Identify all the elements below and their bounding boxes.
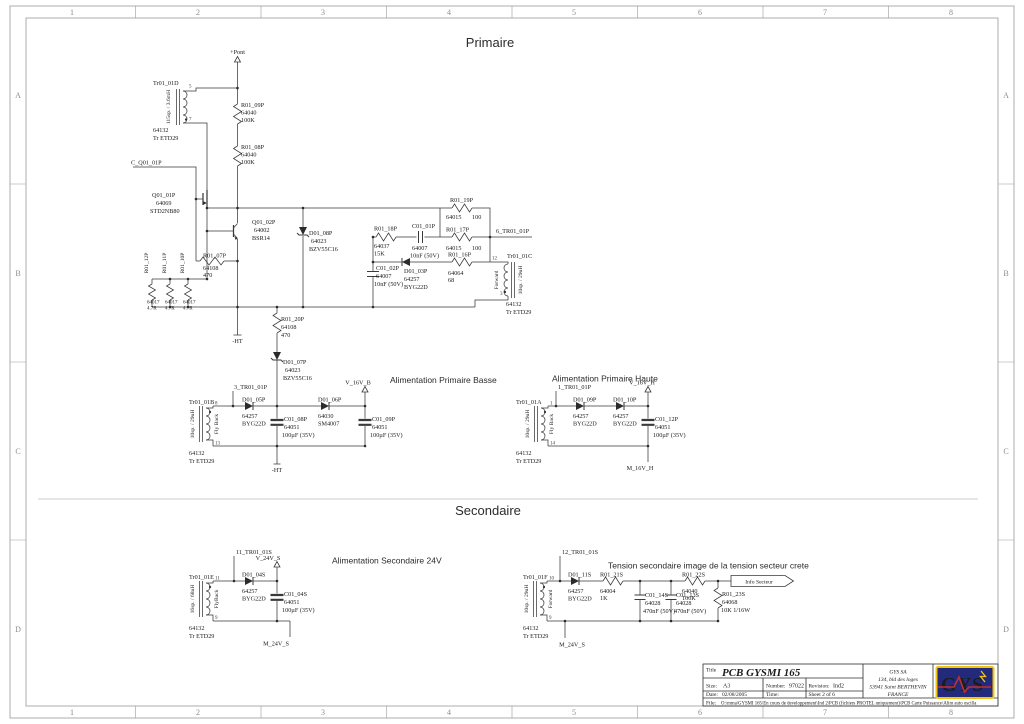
polarity-dot (504, 291, 506, 293)
transformer-tr01-01b: Tr01_01B 8 13 10sp. / 29uH Fly Back 6413… (189, 399, 221, 465)
r01-23s-ref: R01_23S (722, 591, 746, 598)
r01-08p-part: 64040 (241, 152, 256, 159)
r01-12p-val: 4.7R (147, 307, 157, 312)
net-label-ht: -HT (272, 467, 283, 474)
diode-d01-06p: D01_06P 64030 SM4007 (318, 397, 342, 428)
tr01-01c-pin-a: 12 (492, 257, 498, 262)
tr01-01a-ref: Tr01_01A (516, 399, 542, 406)
resistor-r01-23s: R01_23S 64068 10K 1/16W (714, 588, 750, 614)
d01-05p-part: 64257 (242, 413, 257, 420)
diode-d01-10p: D01_10P 64257 BYG22D (613, 397, 637, 428)
r01-19p-part: 64015 (446, 214, 461, 221)
resistor-r01-19p: R01_19P 64015 100 (446, 197, 481, 221)
plates (359, 420, 372, 425)
r01-18p-ref: R01_18P (374, 226, 398, 233)
c01-02p-val: 10nF (50V) (374, 281, 403, 288)
r01-18p-val: 15K (374, 251, 385, 258)
d01-08p-part: 64023 (311, 238, 326, 245)
r01-07p-ref: R01_07P (203, 253, 227, 260)
mosfet-q01-01p: Q01_01P 64069 STD2NB80 (150, 190, 207, 215)
r01-16p-val: 68 (448, 277, 454, 284)
diode-d01-04s: D01_04S 64257 BYG22D (242, 572, 266, 603)
net-label-m24v-s: M_24V_S (263, 641, 289, 648)
zigzag (149, 284, 156, 300)
c01-04s-part: 64051 (284, 599, 299, 606)
tr01-01d-type: Tr ETD29 (153, 135, 178, 142)
tr01-01b-winding: 10sp. / 29uH (190, 410, 196, 439)
r01-20p-part: 64108 (281, 324, 296, 331)
r01-18p-part: 64037 (374, 243, 389, 250)
zone-row-left: B (15, 269, 20, 278)
r01-22s-val: 100K (682, 595, 696, 602)
d01-06p-val: SM4007 (318, 421, 339, 428)
polarity-dot (209, 586, 211, 588)
d01-10p-ref: D01_10P (613, 397, 637, 404)
zone-row-right: C (1003, 447, 1008, 456)
wires (133, 62, 475, 406)
r01-23s-part: 64068 (722, 599, 737, 606)
diode-triangle (402, 258, 410, 266)
d01-06p-ref: D01_06P (318, 397, 342, 404)
net-label-6-tr01-01p: 6_TR01_01P (496, 228, 530, 235)
q01-01p-val: STD2NB80 (150, 208, 180, 215)
alim-primaire-basse: Alimentation Primaire Basse 3_TR01_01P V… (189, 375, 497, 474)
alim-basse-title: Alimentation Primaire Basse (390, 375, 497, 385)
resistor-r01-09p: R01_09P 64040 100K (234, 102, 265, 124)
net-label-pont: +Pont (230, 49, 245, 56)
transformer-tr01-01e: Tr01_01E 11 9 16sp. / 68uH FlyBack 64132… (189, 574, 220, 640)
c01-08p-part: 64051 (284, 424, 299, 431)
tr01-01a-type: Tr ETD29 (516, 458, 541, 465)
capacitor-c01-02p: C01_02P 64007 10nF (50V) (374, 265, 403, 288)
zone-col-top: 2 (196, 8, 200, 17)
number-label: Number: (766, 684, 786, 690)
r01-20p-val: 470 (281, 332, 290, 339)
d01-10p-part: 64257 (613, 413, 628, 420)
tr01-01e-part: 64132 (189, 625, 204, 632)
core (177, 89, 180, 125)
size-value: A3 (723, 684, 730, 690)
number-value: 97022 (789, 684, 804, 690)
resistor-r01-18p: R01_18P 64037 15K (374, 226, 398, 258)
diode-d01-03p: D01_03P 64257 BYG22D (402, 258, 428, 291)
c01-09p-val: 100µF (35V) (370, 432, 403, 439)
zone-row-left: D (15, 625, 21, 634)
v24s-arrow-icon (274, 562, 280, 568)
tr01-01f-mode: Forward (548, 589, 554, 608)
zone-row-right: D (1003, 625, 1009, 634)
core (535, 406, 538, 442)
c01-02p-ref: C01_02P (376, 265, 400, 272)
net-label-12-tr01-01s: 12_TR01_01S (562, 549, 599, 556)
coil (183, 91, 187, 123)
zone-col-top: 6 (698, 8, 702, 17)
tr01-01b-part: 64132 (189, 450, 204, 457)
r01-21s-ref: R01_21S (600, 572, 624, 579)
zone-row-right: A (1003, 91, 1009, 100)
q01-01p-ref: Q01_01P (152, 192, 176, 199)
sheet-value: Sheet 2 of 6 (809, 691, 836, 698)
d01-05p-val: BYG22D (242, 421, 266, 428)
time-label: Time: (766, 692, 779, 698)
c01-14s-val: 470nF (50V) (643, 608, 675, 615)
d01-03p-part: 64257 (404, 276, 419, 283)
d01-04s-part: 64257 (242, 588, 257, 595)
r01-16p-part: 64064 (448, 270, 463, 277)
zone-col-top: 3 (321, 8, 325, 17)
v16b-arrow-icon (362, 387, 368, 393)
d01-11s-part: 64257 (568, 588, 583, 595)
zone-col-top: 8 (949, 8, 953, 17)
r01-22s-ref: R01_22S (682, 572, 706, 579)
c01-01p-plates (419, 231, 423, 243)
net-label-m24v-s: M_24V_S (559, 642, 585, 649)
q01-02p-part: 64002 (254, 227, 269, 234)
tr01-01a-winding: 10sp. / 29uH (525, 410, 531, 439)
zigzag (452, 204, 472, 212)
capacitor-c01-01p: C01_01P 64007 10nF (50V) (410, 223, 439, 260)
tr01-01e-pin-a: 11 (215, 577, 220, 582)
zigzag (452, 233, 472, 241)
c01-08p-ref: C01_08P (284, 416, 308, 423)
c01-12p-val: 100µF (35V) (653, 432, 686, 439)
d01-07p-ref: D01_07P (283, 359, 307, 366)
net-label-v16v-h: V_16V_H (629, 380, 655, 387)
d01-03p-val: BYG22D (404, 284, 428, 291)
tr01-01f-type: Tr ETD29 (523, 633, 548, 640)
net-label-v24v-s: V_24V_S (256, 555, 281, 562)
c01-04s-val: 100µF (35V) (282, 607, 315, 614)
net-label-ht: -HT (232, 338, 243, 345)
r01-23s-val: 10K 1/16W (721, 607, 750, 614)
tr01-01f-pin-a: 10 (549, 577, 555, 582)
net-label-1-tr01-01p: 1_TR01_01P (558, 384, 592, 391)
tr01-01f-winding: 10sp. / 29uH (524, 585, 530, 614)
net-label-info-secteur: Info Secteur (745, 579, 773, 586)
d01-09p-ref: D01_09P (573, 397, 597, 404)
r01-09p-ref: R01_09P (241, 102, 265, 109)
zone-col-top: 1 (70, 8, 74, 17)
file-path: O:\mma\GYSMI 165\En cours de developpeme… (721, 701, 977, 706)
polarity-dot (209, 411, 211, 413)
tr01-01d-pin-a: 5 (189, 85, 192, 90)
zone-ticks (10, 6, 1014, 718)
transformer-tr01-01d: Tr01_01D 5 7 64132 Tr ETD29 115sp. / 3.6… (153, 80, 192, 142)
zone-col-bottom: 8 (949, 708, 953, 717)
d01-07p-val: BZV55C16 (283, 375, 312, 382)
primaire-title: Primaire (466, 35, 514, 50)
zigzag (167, 284, 174, 300)
core (512, 262, 515, 298)
c01-09p-ref: C01_09P (372, 416, 396, 423)
r01-21s-part: 64004 (600, 588, 615, 595)
tr01-01b-type: Tr ETD29 (189, 458, 214, 465)
zone-col-top: 7 (823, 8, 827, 17)
tr01-01c-winding: 10sp. / 29uH (518, 266, 524, 295)
tr01-01d-part: 64132 (153, 127, 168, 134)
core (534, 581, 537, 617)
zigzag (273, 313, 281, 333)
tr01-01c-part: 64132 (506, 301, 521, 308)
tr01-01a-pin-b: 14 (550, 442, 556, 447)
plates (271, 595, 284, 600)
title-label: Title (706, 668, 717, 674)
tr01-01a-mode: Fly Back (549, 414, 555, 435)
company-address-2: 53941 Saint BERTHEVIN (869, 684, 926, 691)
d01-04s-ref: D01_04S (242, 572, 266, 579)
r01-08p-ref: R01_08P (241, 144, 265, 151)
tr01-01d-pin-b: 7 (189, 118, 192, 123)
zone-col-bottom: 5 (572, 708, 576, 717)
junction-dots (169, 87, 375, 309)
c01-14s-part: 64028 (645, 600, 660, 607)
d01-03p-ref: D01_03P (404, 268, 428, 275)
bjt-q01-02p: Q01_02P 64002 BSR14 (234, 219, 276, 242)
file-label: File: (706, 701, 717, 707)
tr01-01c-type: Tr ETD29 (506, 309, 531, 316)
secondaire-title: Secondaire (455, 503, 521, 518)
zone-col-top: 5 (572, 8, 576, 17)
d01-11s-ref: D01_11S (568, 572, 592, 579)
r01-09p-part: 64040 (241, 110, 256, 117)
r01-10p-part: 64017 (183, 301, 196, 306)
document-title: PCB GYSMI 165 (722, 667, 801, 679)
alim-secondaire-24v: Alimentation Secondaire 24V 11_TR01_01S … (189, 549, 442, 648)
outer-border (10, 6, 1014, 718)
r01-09p-val: 100K (241, 117, 255, 124)
company-country: FRANCE (887, 692, 909, 698)
c01-13s-val: 470nF (50V) (674, 608, 706, 615)
tr01-01f-ref: Tr01_01F (523, 574, 548, 581)
d01-05p-ref: D01_05P (242, 397, 266, 404)
pont-arrow-icon (235, 57, 241, 63)
zone-col-bottom: 4 (447, 708, 451, 717)
primary-snubber-stage: R01_18P 64037 15K C01_01P 64007 10nF (50… (367, 197, 532, 316)
tr01-01e-winding: 16sp. / 68uH (190, 585, 196, 614)
resistor-r01-08p: R01_08P 64040 100K (234, 144, 265, 166)
alim-sec24-title: Alimentation Secondaire 24V (332, 556, 442, 566)
r01-19p-val: 100 (472, 214, 481, 221)
zigzag (376, 233, 396, 241)
alim-primaire-haute: Alimentation Primaire Haute 1_TR01_01P V… (516, 374, 686, 473)
c01-01p-ref: C01_01P (412, 223, 436, 230)
tr01-01b-pin-b: 13 (215, 442, 221, 447)
tr01-01b-mode: Fly Back (214, 414, 220, 435)
r01-22s-part: 64040 (682, 588, 697, 595)
d01-09p-part: 64257 (573, 413, 588, 420)
tr01-01e-mode: FlyBack (214, 589, 220, 608)
tr01-01a-part: 64132 (516, 450, 531, 457)
r01-11p-part: 64017 (165, 301, 178, 306)
revision-label: Revision: (809, 684, 831, 690)
d01-10p-val: BYG22D (613, 421, 637, 428)
q01-02p-ref: Q01_02P (252, 219, 276, 226)
zigzag (714, 588, 722, 608)
resistor-r01-21s: R01_21S 64004 1K (600, 572, 624, 603)
tension-sec-title: Tension secondaire image de la tension s… (608, 561, 809, 571)
r01-16p-ref: R01_16P (448, 252, 472, 259)
sheet-frame: 1 2 3 4 5 6 7 8 1 2 3 4 5 6 7 8 A B C D … (10, 6, 1014, 718)
c01-09p-part: 64051 (372, 424, 387, 431)
zone-col-bottom: 1 (70, 708, 74, 717)
tr01-01f-pin-b: 9 (549, 616, 552, 621)
d01-08p-val: BZV55C16 (309, 246, 338, 253)
resistor-r01-16p: R01_16P 64064 68 (448, 252, 472, 285)
r01-12p-part: 64017 (147, 301, 160, 306)
d01-08p-ref: D01_08P (309, 230, 333, 237)
transformer-tr01-01c: 12 Tr01_01C 3 Forward 10sp. / 29uH 64132… (492, 253, 532, 316)
r01-17p-ref: R01_17P (446, 227, 470, 234)
tr01-01c-ref: Tr01_01C (507, 253, 532, 260)
resistor-r01-17p: R01_17P 64015 100 (446, 227, 481, 253)
net-label-c-q01-01p: C_Q01_01P (131, 160, 162, 167)
info-secteur-port: Info Secteur (731, 576, 794, 587)
tr01-01e-ref: Tr01_01E (189, 574, 214, 581)
tr01-01e-type: Tr ETD29 (189, 633, 214, 640)
q01-02p-val: BSR14 (252, 235, 270, 242)
v16h-arrow-icon (645, 387, 651, 393)
c01-12p-part: 64051 (655, 424, 670, 431)
gys-logo: GYS (937, 667, 994, 698)
tr01-01d-winding: 115sp. / 3.6mH (166, 90, 172, 124)
core (200, 406, 203, 442)
zone-col-bottom: 6 (698, 708, 702, 717)
zone-col-bottom: 2 (196, 708, 200, 717)
d01-04s-val: BYG22D (242, 596, 266, 603)
tr01-01b-ref: Tr01_01B (189, 399, 214, 406)
transformer-tr01-01a: Tr01_01A 1 14 10sp. / 29uH Fly Back 6413… (516, 399, 556, 465)
c01-01p-part: 64007 (412, 245, 427, 252)
core (200, 581, 203, 617)
d01-09p-val: BYG22D (573, 421, 597, 428)
d01-07p-part: 64023 (285, 367, 300, 374)
zone-labels: 1 2 3 4 5 6 7 8 1 2 3 4 5 6 7 8 A B C D … (15, 8, 1009, 717)
zigzag (452, 258, 472, 266)
c01-12p-ref: C01_12P (655, 416, 679, 423)
tr01-01c-pin-b: 3 (500, 292, 503, 297)
c01-01p-val: 10nF (50V) (410, 253, 439, 260)
d01-06p-part: 64030 (318, 413, 333, 420)
r01-10p-ref: R01_10P (180, 253, 186, 274)
size-label: Size: (706, 684, 717, 690)
c01-08p-val: 100µF (35V) (282, 432, 315, 439)
net-label-3-tr01-01p: 3_TR01_01P (234, 384, 268, 391)
date-value: 02/08/2005 (722, 692, 747, 698)
plates (635, 595, 646, 600)
zone-row-left: A (15, 91, 21, 100)
diode-triangle (273, 352, 281, 360)
d01-11s-val: BYG22D (568, 596, 592, 603)
tr01-01e-pin-b: 9 (215, 616, 218, 621)
r01-07p-part: 64108 (203, 265, 218, 272)
c01-14s-ref: C01_14S (645, 592, 669, 599)
zone-col-top: 4 (447, 8, 451, 17)
zigzag (185, 284, 192, 300)
polarity-dot (544, 411, 546, 413)
r01-12p-ref: R01_12P (144, 253, 150, 274)
schematic-canvas: 1 2 3 4 5 6 7 8 1 2 3 4 5 6 7 8 A B C D … (0, 0, 1024, 724)
resistor-r01-07p: R01_07P 64108 470 (200, 253, 227, 280)
zone-col-bottom: 3 (321, 708, 325, 717)
diode-d01-11s: D01_11S 64257 BYG22D (568, 572, 592, 603)
polarity-dot (185, 118, 187, 120)
resistor-r01-22s: R01_22S 64040 100K (682, 572, 706, 603)
diode-d01-05p: D01_05P 64257 BYG22D (242, 397, 266, 428)
tr01-01d-ref: Tr01_01D (153, 80, 179, 87)
tr01-01f-part: 64132 (523, 625, 538, 632)
mosfet-arrow-icon (203, 201, 206, 205)
date-label: Date: (706, 692, 718, 698)
q01-01p-part: 64069 (156, 200, 171, 207)
zone-row-left: C (15, 447, 20, 456)
r01-17p-val: 100 (472, 245, 481, 252)
c01-02p-part: 64007 (376, 273, 391, 280)
polarity-dot (543, 586, 545, 588)
company-info: GYS SA 134, bld des loges 53941 Saint BE… (869, 670, 926, 699)
diode-d01-09p: D01_09P 64257 BYG22D (573, 397, 597, 428)
c01-04s-ref: C01_04S (284, 591, 308, 598)
resistor-r01-20p: R01_20P 64108 470 (273, 313, 305, 339)
plates (271, 420, 284, 425)
tr01-01c-mode: Forward (494, 270, 500, 289)
net-label-m16v-h: M_16V_H (627, 465, 654, 472)
net-label-v16v-b: V_16V_B (345, 380, 370, 387)
company-name: GYS SA (889, 670, 907, 676)
tension-secteur-block: Tension secondaire image de la tension s… (523, 549, 809, 649)
transformer-tr01-01f: Tr01_01F 10 9 10sp. / 29uH Forward 64132… (523, 574, 555, 640)
revision-value: Ind2 (833, 684, 844, 690)
zone-col-bottom: 7 (823, 708, 827, 717)
r01-08p-val: 100K (241, 159, 255, 166)
r01-21s-val: 1K (600, 595, 608, 602)
zone-row-right: B (1003, 269, 1008, 278)
r01-20p-ref: R01_20P (281, 316, 305, 323)
company-address-1: 134, bld des loges (878, 676, 918, 683)
plates (642, 420, 655, 425)
r01-19p-ref: R01_19P (450, 197, 474, 204)
r01-11p-ref: R01_11P (162, 253, 168, 274)
diode-triangle (299, 227, 307, 235)
title-block: Title PCB GYSMI 165 Size: A3 Number: 970… (703, 664, 998, 707)
